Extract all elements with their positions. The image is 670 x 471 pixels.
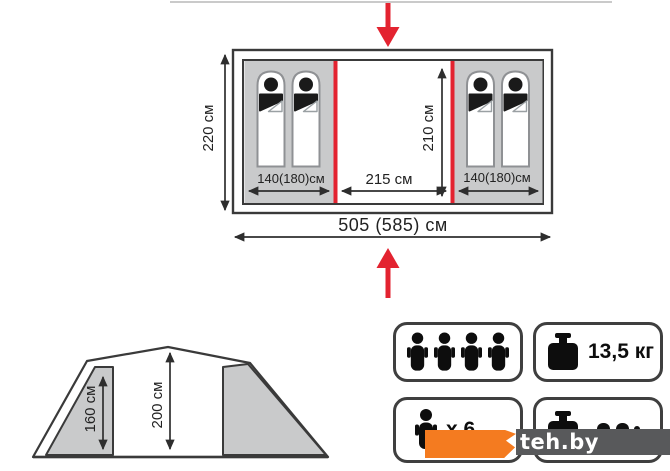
bottom-entrance-arrowhead — [377, 248, 400, 268]
center-height-label: 200 см — [148, 373, 166, 437]
floor-plan — [225, 3, 552, 298]
badge-capacity — [393, 322, 523, 382]
inner-depth-label: 210 см — [419, 96, 437, 160]
sleeping-bag-icon — [258, 72, 285, 167]
watermark-banner: teh.by — [516, 429, 670, 455]
kettlebell-icon — [546, 333, 580, 371]
sleeping-bag-icon — [502, 72, 529, 167]
overall-depth-label: 220 см — [199, 96, 217, 160]
right-side-panel — [223, 364, 326, 455]
person-icon — [461, 332, 482, 373]
top-entrance-arrowhead — [377, 27, 400, 47]
people-icons — [396, 332, 520, 373]
sleeping-bag-icon — [293, 72, 320, 167]
product-dimensions-image: 220 см 210 см 215 см 140(180)см 140(180)… — [0, 0, 670, 471]
watermark-orange-banner — [425, 430, 516, 458]
center-width-label: 215 см — [344, 171, 434, 188]
badge-weight: 13,5 кг — [533, 322, 663, 382]
side-view — [33, 347, 328, 457]
right-room-width-label: 140(180)см — [452, 169, 542, 185]
overall-width-label: 505 (585) см — [318, 215, 468, 234]
person-icon — [407, 332, 428, 373]
person-icon — [434, 332, 455, 373]
watermark-logo-text: teh.by — [516, 430, 599, 454]
side-height-label: 160 см — [81, 377, 99, 441]
person-icon — [488, 332, 509, 373]
left-room-width-label: 140(180)см — [246, 170, 336, 186]
bottom-entrance-arrow — [386, 267, 391, 298]
weight-value: 13,5 кг — [588, 340, 654, 364]
sleeping-bag-icon — [467, 72, 494, 167]
top-entrance-arrow — [386, 3, 391, 29]
